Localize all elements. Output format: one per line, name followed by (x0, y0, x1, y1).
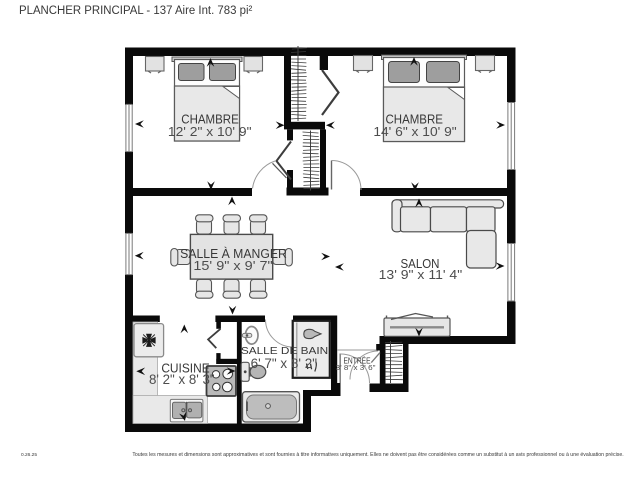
svg-text:6' 7" x 8' 2": 6' 7" x 8' 2" (251, 356, 318, 371)
svg-text:13' 9" x 11' 4": 13' 9" x 11' 4" (379, 267, 463, 282)
svg-text:8' 2" x 8' 3": 8' 2" x 8' 3" (149, 372, 215, 387)
svg-text:3' 8" x 3' 6": 3' 8" x 3' 6" (336, 363, 376, 372)
svg-text:12' 2" x 10' 9": 12' 2" x 10' 9" (168, 124, 252, 139)
svg-text:PLANCHER PRINCIPAL - 137 Aire: PLANCHER PRINCIPAL - 137 Aire Int. 783 p… (19, 3, 252, 18)
svg-text:15' 9" x 9' 7": 15' 9" x 9' 7" (193, 258, 272, 273)
svg-text:Toutes les mesures et dimensio: Toutes les mesures et dimensions sont ap… (132, 452, 623, 458)
svg-text:0.26.25: 0.26.25 (21, 452, 37, 458)
svg-text:14' 6" x 10' 9": 14' 6" x 10' 9" (373, 124, 457, 139)
